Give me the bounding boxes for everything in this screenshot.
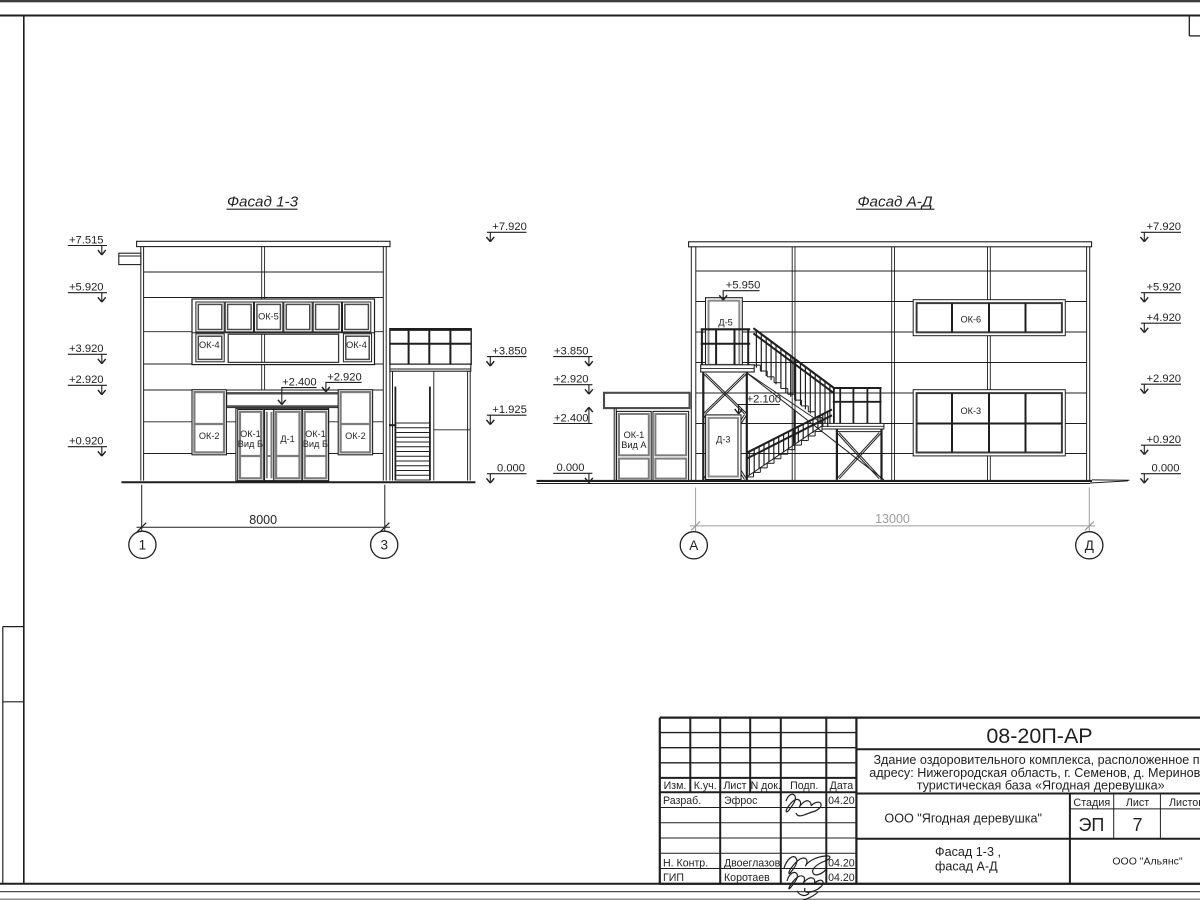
svg-text:13000: 13000 xyxy=(875,512,910,526)
svg-text:Фасад 1-3 ,: Фасад 1-3 , xyxy=(935,845,1001,859)
svg-text:1: 1 xyxy=(139,538,147,553)
svg-text:0.000: 0.000 xyxy=(497,463,525,475)
svg-text:+3.920: +3.920 xyxy=(69,343,104,355)
svg-text:0.000: 0.000 xyxy=(557,462,585,474)
svg-text:Дата: Дата xyxy=(830,780,854,792)
svg-text:ОК-1: ОК-1 xyxy=(240,429,261,439)
svg-text:Лист: Лист xyxy=(723,780,746,792)
svg-text:ЭП: ЭП xyxy=(1078,815,1104,835)
svg-text:ООО "Ягодная деревушка": ООО "Ягодная деревушка" xyxy=(884,812,1042,826)
svg-text:+0.920: +0.920 xyxy=(1147,434,1182,446)
svg-text:+5.950: +5.950 xyxy=(726,280,761,292)
svg-text:Подп.: Подп. xyxy=(790,780,818,792)
svg-text:+7.920: +7.920 xyxy=(492,221,527,233)
svg-text:Листов: Листов xyxy=(1169,797,1200,809)
svg-text:+3.850: +3.850 xyxy=(492,346,527,358)
svg-text:Вид Б: Вид Б xyxy=(238,439,263,449)
svg-text:ОК-2: ОК-2 xyxy=(345,431,366,441)
svg-text:Вид Б: Вид Б xyxy=(303,439,328,449)
svg-text:+2.920: +2.920 xyxy=(1147,373,1182,385)
svg-text:+7.515: +7.515 xyxy=(69,234,104,246)
svg-text:туристическая база «Ягодная де: туристическая база «Ягодная деревушка» xyxy=(917,779,1165,793)
svg-text:N док.: N док. xyxy=(751,780,781,792)
svg-text:+2.920: +2.920 xyxy=(327,371,362,383)
svg-text:04.20: 04.20 xyxy=(828,858,855,870)
svg-text:Стадия: Стадия xyxy=(1073,797,1110,809)
svg-text:Двоеглазов: Двоеглазов xyxy=(724,858,781,870)
svg-text:ОК-4: ОК-4 xyxy=(346,340,367,350)
svg-text:Коротаев: Коротаев xyxy=(724,872,770,884)
svg-text:ГИП: ГИП xyxy=(663,872,684,884)
svg-text:ООО "Альянс": ООО "Альянс" xyxy=(1112,856,1182,868)
svg-text:3: 3 xyxy=(380,538,388,553)
svg-text:фасад А-Д: фасад А-Д xyxy=(935,860,998,874)
svg-text:ОК-6: ОК-6 xyxy=(960,314,981,324)
svg-text:+5.920: +5.920 xyxy=(1147,282,1182,294)
svg-text:08-20П-АР: 08-20П-АР xyxy=(986,724,1092,748)
svg-text:8000: 8000 xyxy=(249,513,277,527)
svg-text:+0.920: +0.920 xyxy=(69,436,104,448)
svg-text:ОК-2: ОК-2 xyxy=(199,431,220,441)
svg-text:+1.925: +1.925 xyxy=(492,404,527,416)
svg-text:Д-5: Д-5 xyxy=(718,318,732,328)
svg-text:ОК-4: ОК-4 xyxy=(199,340,220,350)
svg-text:+2.400: +2.400 xyxy=(282,377,317,389)
svg-text:+2.920: +2.920 xyxy=(69,374,104,386)
svg-text:А: А xyxy=(689,538,698,553)
svg-text:Фасад 1-3: Фасад 1-3 xyxy=(227,193,299,210)
svg-text:+2.400: +2.400 xyxy=(554,412,589,424)
svg-text:Разраб.: Разраб. xyxy=(663,795,701,807)
svg-text:Д-3: Д-3 xyxy=(716,435,730,445)
svg-text:+3.850: +3.850 xyxy=(554,346,589,358)
svg-text:+2.100: +2.100 xyxy=(747,393,782,405)
svg-text:Здание оздоровительного компле: Здание оздоровительного комплекса, распо… xyxy=(873,753,1200,767)
svg-text:К.уч.: К.уч. xyxy=(694,780,717,792)
svg-text:04.20: 04.20 xyxy=(828,795,855,807)
svg-text:ОК-5: ОК-5 xyxy=(258,312,279,322)
svg-text:+5.920: +5.920 xyxy=(69,282,104,294)
svg-text:+2.920: +2.920 xyxy=(554,374,589,386)
svg-text:Изм.: Изм. xyxy=(664,780,687,792)
svg-text:Фасад А-Д: Фасад А-Д xyxy=(857,193,932,210)
svg-text:Н. Контр.: Н. Контр. xyxy=(663,858,708,870)
svg-text:Д: Д xyxy=(1085,538,1094,553)
svg-text:ОК-1: ОК-1 xyxy=(305,429,326,439)
svg-text:ОК-3: ОК-3 xyxy=(960,406,981,416)
svg-text:0.000: 0.000 xyxy=(1152,463,1180,475)
svg-text:+4.920: +4.920 xyxy=(1147,312,1182,324)
svg-text:Эфрос: Эфрос xyxy=(724,795,758,807)
svg-text:+7.920: +7.920 xyxy=(1147,221,1182,233)
svg-text:7: 7 xyxy=(1132,815,1142,835)
svg-text:ОК-1: ОК-1 xyxy=(624,430,645,440)
svg-text:04.20: 04.20 xyxy=(828,872,855,884)
svg-text:Вид А: Вид А xyxy=(621,440,647,450)
svg-text:Д-1: Д-1 xyxy=(280,434,294,444)
svg-text:Лист: Лист xyxy=(1126,797,1150,809)
